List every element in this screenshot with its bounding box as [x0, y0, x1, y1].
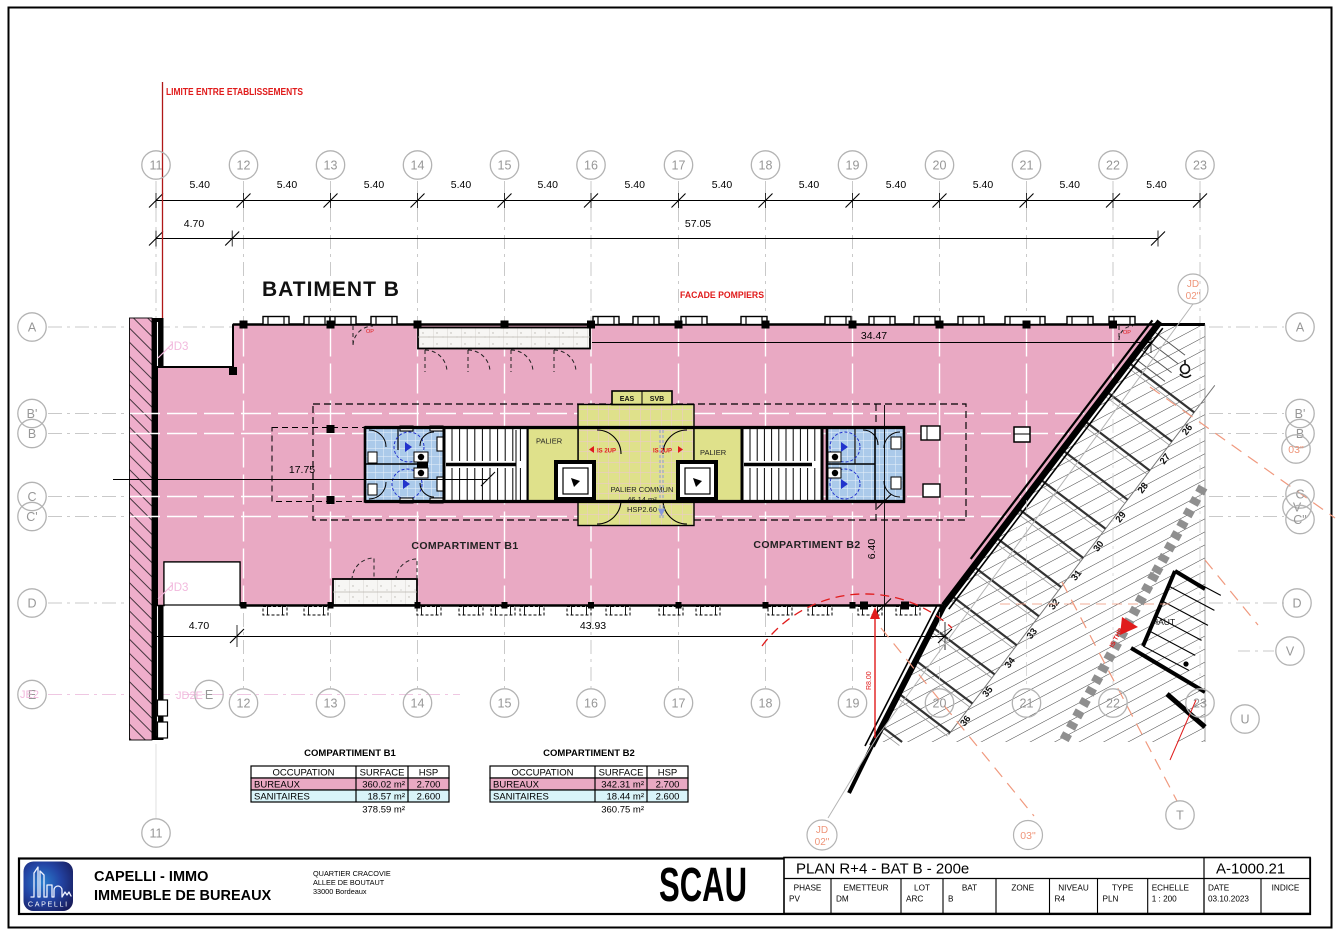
svg-text:ECHELLE: ECHELLE: [1152, 884, 1190, 893]
svg-text:PHASE: PHASE: [794, 884, 822, 893]
svg-text:CAPELLI: CAPELLI: [28, 900, 69, 909]
svg-text:43.93: 43.93: [580, 620, 606, 632]
svg-text:20: 20: [933, 697, 947, 711]
svg-text:16: 16: [584, 697, 598, 711]
svg-text:SANITAIRES: SANITAIRES: [493, 792, 549, 803]
svg-text:14: 14: [411, 697, 425, 711]
svg-text:5.40: 5.40: [1146, 179, 1167, 191]
svg-text:OCCUPATION: OCCUPATION: [512, 768, 574, 779]
svg-text:11: 11: [150, 159, 163, 173]
svg-text:2.700: 2.700: [417, 780, 441, 791]
svg-text:5.40: 5.40: [973, 179, 994, 191]
svg-text:BUREAUX: BUREAUX: [254, 780, 301, 791]
svg-text:DM: DM: [836, 895, 849, 904]
svg-text:PV: PV: [789, 895, 800, 904]
svg-text:JD2E: JD2E: [176, 690, 203, 702]
svg-text:18.57 m²: 18.57 m²: [368, 792, 406, 803]
svg-text:COMPARTIMENT B1: COMPARTIMENT B1: [411, 540, 518, 552]
svg-text:6.40: 6.40: [866, 539, 878, 560]
svg-text:C": C": [1293, 513, 1306, 527]
svg-text:IS 2UP: IS 2UP: [597, 449, 616, 455]
svg-text:5.40: 5.40: [625, 179, 646, 191]
svg-text:11: 11: [150, 827, 163, 841]
svg-text:4.70: 4.70: [184, 218, 205, 230]
svg-text:IS 2UP: IS 2UP: [653, 449, 672, 455]
svg-text:JD: JD: [1187, 279, 1199, 290]
svg-text:13: 13: [324, 697, 338, 711]
svg-text:5.40: 5.40: [190, 179, 211, 191]
svg-text:378.59 m²: 378.59 m²: [362, 805, 405, 816]
svg-text:02": 02": [815, 837, 830, 848]
svg-text:LIMITE ENTRE ETABLISSEMENTS: LIMITE ENTRE ETABLISSEMENTS: [166, 87, 303, 98]
svg-text:JD: JD: [816, 825, 828, 836]
svg-text:4.70: 4.70: [189, 620, 210, 632]
svg-text:HAUT: HAUT: [1152, 617, 1175, 627]
svg-text:B: B: [1296, 427, 1304, 441]
svg-text:5.40: 5.40: [451, 179, 472, 191]
svg-text:OP: OP: [1123, 330, 1131, 336]
svg-text:5.40: 5.40: [538, 179, 559, 191]
svg-text:2.700: 2.700: [656, 780, 680, 791]
svg-text:OP: OP: [366, 329, 374, 335]
svg-text:EAS: EAS: [620, 396, 635, 403]
svg-text:23: 23: [1193, 159, 1207, 173]
svg-text:LOT: LOT: [914, 884, 930, 893]
svg-text:23: 23: [1193, 697, 1207, 711]
svg-text:342.31 m²: 342.31 m²: [601, 780, 644, 791]
svg-text:03": 03": [1288, 444, 1304, 456]
svg-text:C': C': [26, 510, 37, 524]
svg-text:16: 16: [584, 159, 598, 173]
svg-text:IMMEUBLE DE BUREAUX: IMMEUBLE DE BUREAUX: [94, 888, 272, 904]
svg-text:U: U: [1240, 713, 1249, 727]
svg-text:BUREAUX: BUREAUX: [493, 780, 540, 791]
svg-text:HSP: HSP: [419, 768, 439, 779]
svg-text:21: 21: [1020, 697, 1034, 711]
svg-text:A-1000.21: A-1000.21: [1216, 861, 1285, 878]
svg-text:360.02 m²: 360.02 m²: [362, 780, 405, 791]
svg-text:R4: R4: [1055, 895, 1066, 904]
svg-text:A: A: [1296, 321, 1305, 335]
svg-text:15: 15: [498, 159, 512, 173]
svg-text:15: 15: [498, 697, 512, 711]
svg-text:SVB: SVB: [650, 396, 664, 403]
svg-text:INDICE: INDICE: [1272, 884, 1300, 893]
svg-text:BATIMENT B: BATIMENT B: [262, 278, 400, 301]
svg-text:18.44 m²: 18.44 m²: [607, 792, 645, 803]
svg-text:NIVEAU: NIVEAU: [1058, 884, 1089, 893]
svg-text:B: B: [948, 895, 954, 904]
svg-text:OCCUPATION: OCCUPATION: [273, 768, 335, 779]
svg-text:SCAU: SCAU: [659, 859, 747, 912]
svg-text:2.600: 2.600: [417, 792, 441, 803]
svg-text:12: 12: [237, 697, 251, 711]
svg-text:TYPE: TYPE: [1112, 884, 1134, 893]
svg-text:COMPARTIMENT B2: COMPARTIMENT B2: [753, 539, 860, 551]
svg-text:03.10.2023: 03.10.2023: [1208, 895, 1249, 904]
svg-text:20: 20: [933, 159, 947, 173]
svg-text:HSP: HSP: [658, 768, 678, 779]
svg-text:CAPELLI - IMMO: CAPELLI - IMMO: [94, 869, 208, 885]
svg-text:1 : 200: 1 : 200: [1152, 895, 1177, 904]
svg-text:PLAN R+4 - BAT B - 200e: PLAN R+4 - BAT B - 200e: [796, 861, 969, 878]
svg-text:PALIER: PALIER: [700, 448, 727, 457]
svg-text:360.75 m²: 360.75 m²: [601, 805, 644, 816]
svg-text:19: 19: [846, 159, 860, 173]
svg-text:PALIER: PALIER: [536, 437, 563, 446]
svg-text:JD3: JD3: [168, 341, 188, 353]
svg-text:PLN: PLN: [1103, 895, 1119, 904]
svg-text:FACADE POMPIERS: FACADE POMPIERS: [680, 290, 764, 301]
svg-text:SANITAIRES: SANITAIRES: [254, 792, 310, 803]
svg-text:QUARTIER CRACOVIE: QUARTIER CRACOVIE: [313, 869, 391, 878]
svg-text:5.40: 5.40: [1060, 179, 1081, 191]
svg-text:T: T: [1176, 809, 1184, 823]
svg-text:JE2: JE2: [20, 689, 39, 701]
svg-text:5.40: 5.40: [277, 179, 298, 191]
svg-text:5.40: 5.40: [799, 179, 820, 191]
svg-text:57.05: 57.05: [685, 218, 711, 230]
svg-text:19: 19: [846, 697, 860, 711]
svg-text:14: 14: [411, 159, 425, 173]
svg-text:D: D: [1292, 597, 1301, 611]
svg-text:18: 18: [759, 159, 773, 173]
svg-text:ARC: ARC: [906, 895, 923, 904]
svg-text:5.40: 5.40: [886, 179, 907, 191]
svg-text:18: 18: [759, 697, 773, 711]
svg-text:12: 12: [237, 159, 251, 173]
svg-text:13: 13: [324, 159, 338, 173]
svg-text:A: A: [28, 321, 37, 335]
svg-text:33000 Bordeaux: 33000 Bordeaux: [313, 887, 367, 896]
svg-text:2.600: 2.600: [656, 792, 680, 803]
svg-text:B: B: [28, 427, 36, 441]
svg-text:02": 02": [1186, 291, 1201, 302]
svg-text:JD3: JD3: [168, 582, 188, 594]
svg-text:V: V: [1286, 645, 1295, 659]
svg-text:BAT: BAT: [962, 884, 977, 893]
svg-text:17: 17: [672, 697, 686, 711]
svg-text:SURFACE: SURFACE: [360, 768, 405, 779]
svg-text:EMETTEUR: EMETTEUR: [843, 884, 888, 893]
svg-text:34.47: 34.47: [861, 330, 887, 342]
svg-text:5.40: 5.40: [712, 179, 733, 191]
svg-text:E: E: [205, 688, 213, 702]
svg-text:D: D: [27, 597, 36, 611]
svg-text:COMPARTIMENT B1: COMPARTIMENT B1: [304, 748, 396, 759]
svg-text:R8.00: R8.00: [866, 671, 873, 690]
svg-text:21: 21: [1020, 159, 1034, 173]
svg-text:22: 22: [1106, 697, 1120, 711]
svg-text:HSP2.60: HSP2.60: [627, 505, 657, 514]
svg-text:17.75: 17.75: [289, 464, 315, 476]
svg-text:ZONE: ZONE: [1011, 884, 1034, 893]
svg-text:5.40: 5.40: [364, 179, 385, 191]
svg-text:COMPARTIMENT B2: COMPARTIMENT B2: [543, 748, 635, 759]
svg-text:ALLEE DE BOUTAUT: ALLEE DE BOUTAUT: [313, 878, 385, 887]
svg-text:17: 17: [672, 159, 686, 173]
svg-text:22: 22: [1106, 159, 1120, 173]
svg-text:PALIER COMMUN: PALIER COMMUN: [611, 485, 674, 494]
svg-text:SURFACE: SURFACE: [599, 768, 644, 779]
svg-text:DATE: DATE: [1208, 884, 1230, 893]
svg-text:03": 03": [1020, 830, 1036, 842]
